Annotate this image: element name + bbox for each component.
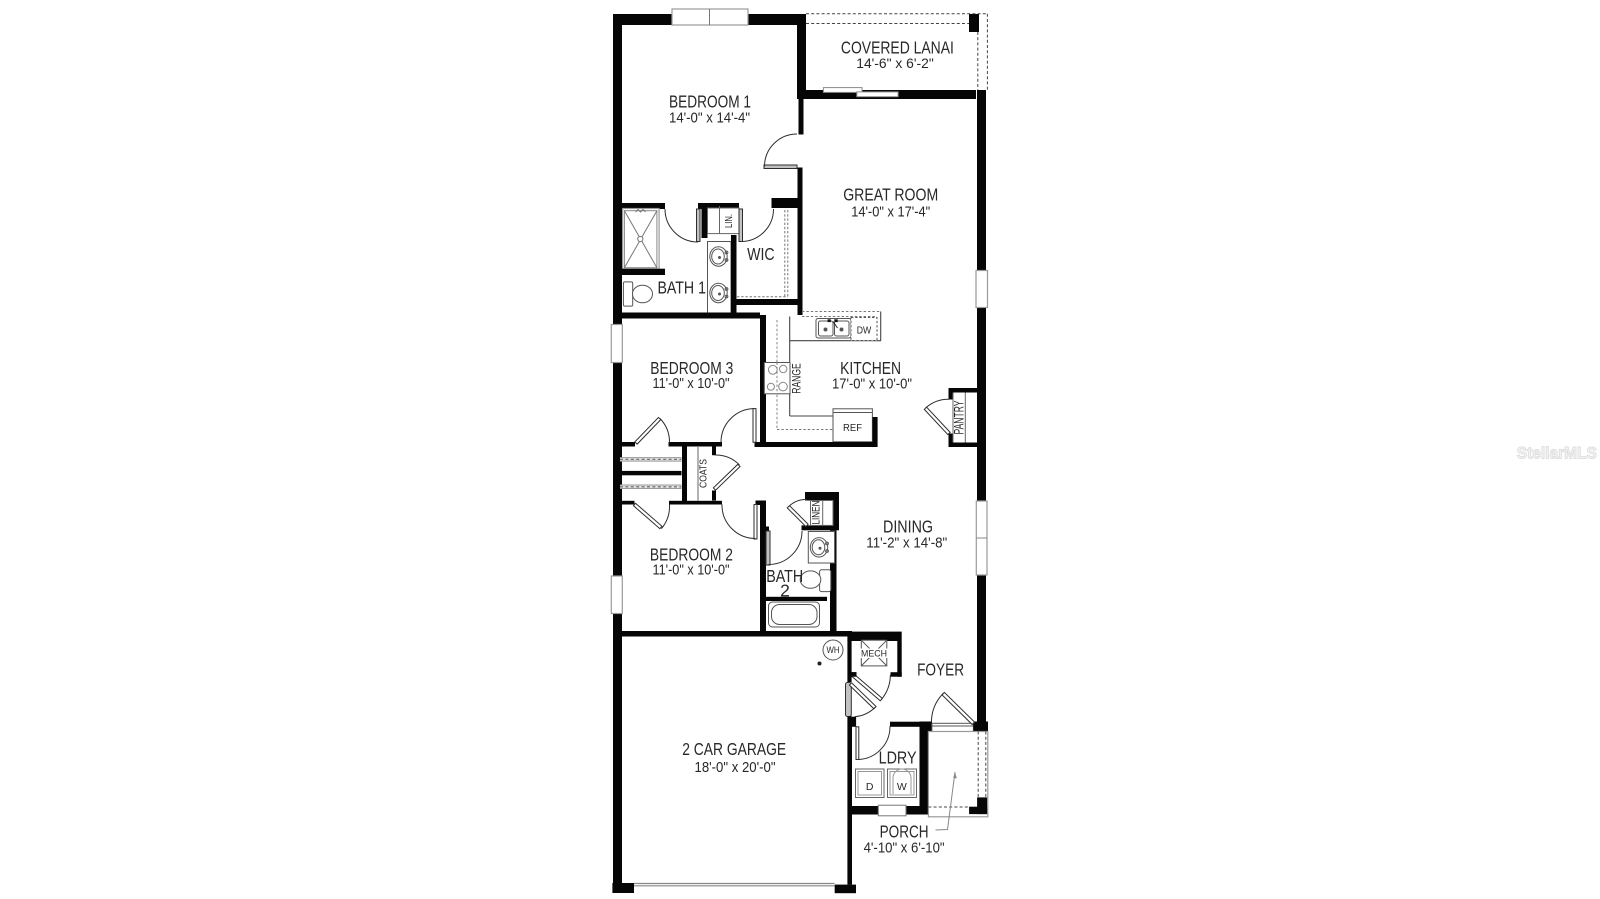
svg-text:14'-0" x 14'-4": 14'-0" x 14'-4" bbox=[669, 110, 750, 127]
svg-text:4'-10" x 6'-10": 4'-10" x 6'-10" bbox=[864, 840, 945, 857]
svg-text:PANTRY: PANTRY bbox=[951, 400, 967, 434]
svg-text:COATS: COATS bbox=[698, 459, 710, 488]
svg-text:FOYER: FOYER bbox=[917, 659, 964, 679]
svg-text:COVERED LANAI: COVERED LANAI bbox=[841, 38, 954, 58]
svg-text:PORCH: PORCH bbox=[880, 822, 929, 842]
svg-text:11'-2" x 14'-8": 11'-2" x 14'-8" bbox=[866, 535, 947, 552]
svg-text:GREAT ROOM: GREAT ROOM bbox=[843, 185, 938, 205]
svg-text:MECH: MECH bbox=[861, 649, 887, 660]
svg-text:LDRY: LDRY bbox=[879, 748, 917, 768]
svg-text:BATH 1: BATH 1 bbox=[657, 278, 706, 298]
svg-text:W: W bbox=[897, 781, 907, 793]
svg-text:BEDROOM 1: BEDROOM 1 bbox=[669, 92, 751, 112]
svg-text:D: D bbox=[866, 781, 874, 793]
svg-text:DW: DW bbox=[857, 324, 872, 336]
svg-text:14'-6" x 6'-2": 14'-6" x 6'-2" bbox=[856, 56, 934, 71]
svg-text:WIC: WIC bbox=[747, 244, 775, 264]
svg-text:2 CAR GARAGE: 2 CAR GARAGE bbox=[682, 739, 786, 759]
svg-text:StellarMLS: StellarMLS bbox=[1517, 445, 1597, 463]
svg-text:17'-0" x 10'-0": 17'-0" x 10'-0" bbox=[832, 376, 912, 393]
svg-text:LIN.: LIN. bbox=[723, 214, 735, 228]
svg-text:REF: REF bbox=[843, 422, 862, 434]
svg-text:14'-0" x 17'-4": 14'-0" x 17'-4" bbox=[851, 204, 930, 221]
svg-text:WH: WH bbox=[827, 645, 840, 655]
svg-text:11'-0" x 10'-0": 11'-0" x 10'-0" bbox=[653, 562, 730, 579]
svg-text:18'-0" x 20'-0": 18'-0" x 20'-0" bbox=[695, 759, 776, 776]
svg-text:11'-0" x 10'-0": 11'-0" x 10'-0" bbox=[653, 375, 730, 392]
svg-text:LINEN: LINEN bbox=[811, 500, 823, 524]
svg-text:RANGE: RANGE bbox=[792, 363, 804, 394]
svg-text:DINING: DINING bbox=[883, 517, 933, 537]
